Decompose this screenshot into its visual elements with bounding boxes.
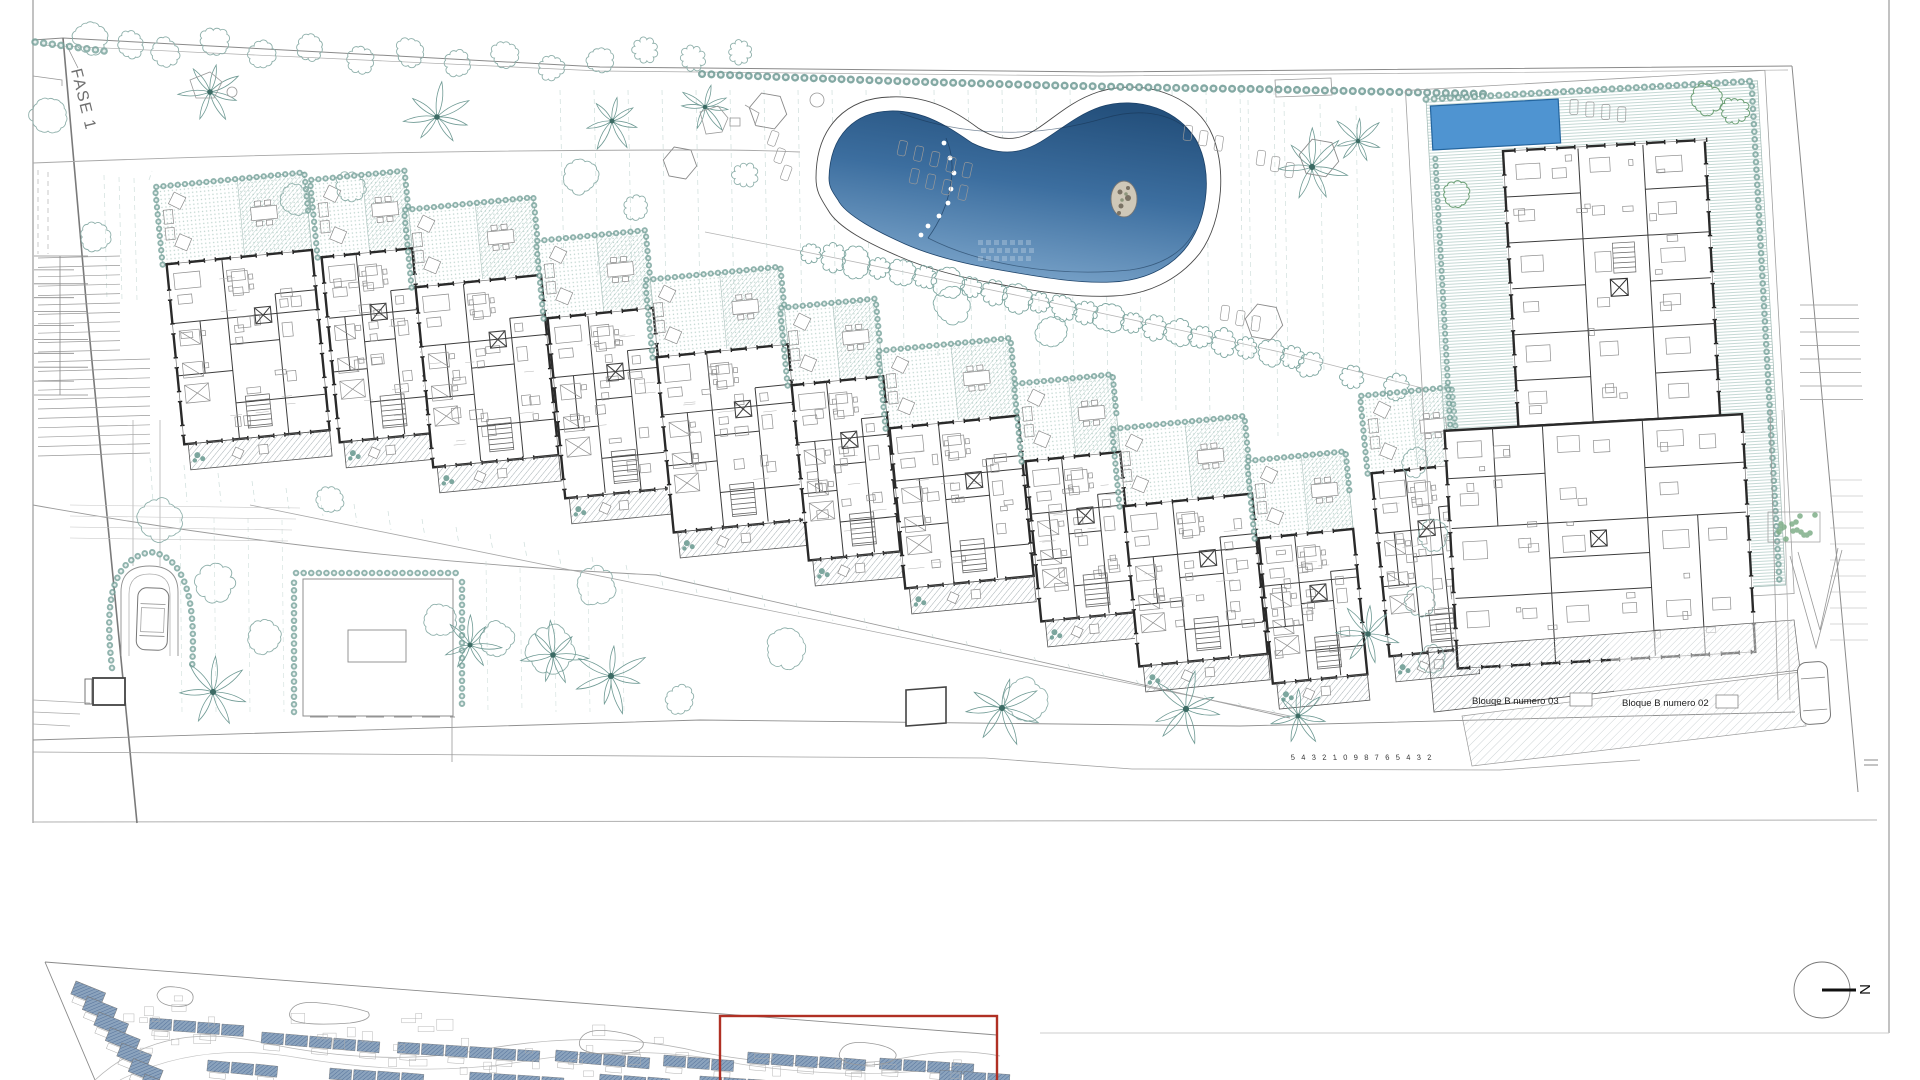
svg-text:Blouqe B numero 03: Blouqe B numero 03 [1472,696,1559,707]
svg-text:N: N [1856,984,1873,995]
svg-text:Bloque B numero 02: Bloque B numero 02 [1622,698,1709,709]
